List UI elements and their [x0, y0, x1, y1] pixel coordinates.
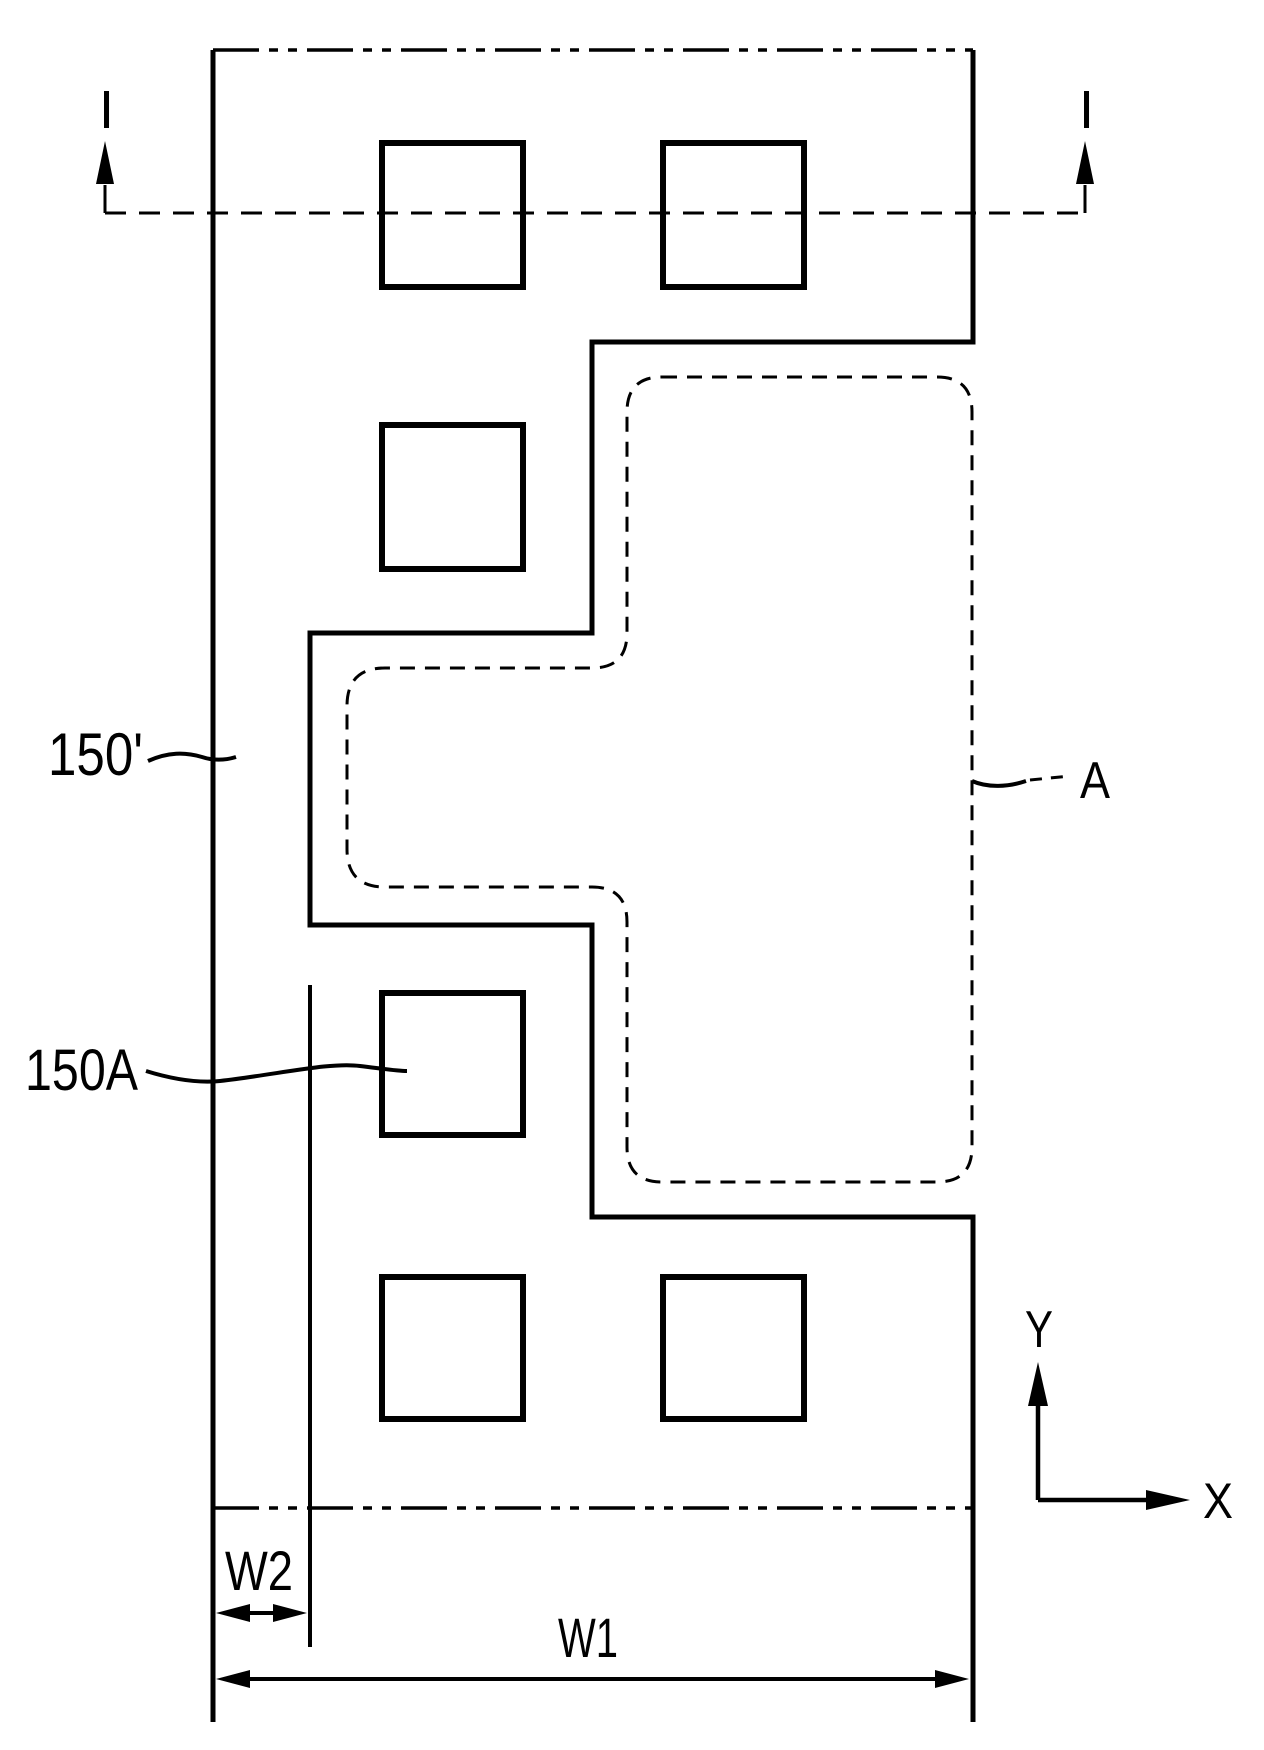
label-150-prime: 150'	[48, 721, 143, 788]
dimension-w1: W1	[216, 1606, 969, 1688]
leader-150-prime	[148, 754, 236, 761]
arrow-up-icon	[1028, 1362, 1048, 1406]
section-arrow-up-icon	[96, 141, 114, 184]
leader-150A	[146, 1065, 407, 1081]
leader-A-solid	[972, 781, 1026, 786]
section-marker-right-label: I	[1079, 80, 1094, 140]
arrow-right-icon	[1146, 1490, 1190, 1510]
contact-square	[663, 143, 804, 287]
section-arrow-up-icon	[1076, 141, 1094, 184]
label-150A: 150A	[25, 1038, 138, 1103]
label-y-axis: Y	[1025, 1301, 1053, 1359]
section-line: I I	[96, 80, 1094, 213]
label-A: A	[1080, 752, 1110, 810]
label-W1: W1	[558, 1606, 618, 1669]
dimension-w2: W2	[216, 1539, 307, 1622]
leader-lines	[146, 754, 1070, 1082]
arrow-left-icon	[216, 1670, 250, 1688]
pattern-stepped-right-edge	[310, 50, 973, 1722]
leader-A-dashed	[1030, 776, 1070, 780]
patent-figure-canvas: I I 150' 150A A W2 W1 Y X	[0, 0, 1264, 1750]
contact-square-150A	[382, 993, 523, 1135]
arrow-right-icon	[935, 1670, 969, 1688]
contact-square	[663, 1277, 804, 1419]
layout-diagram: I I 150' 150A A W2 W1 Y X	[0, 0, 1264, 1750]
phantom-lines	[213, 50, 973, 1508]
contact-square	[382, 425, 523, 569]
contact-squares	[382, 143, 804, 1419]
contact-square	[382, 1277, 523, 1419]
dashed-region-A-outline	[347, 377, 972, 1182]
coordinate-axes: Y X	[1025, 1301, 1233, 1529]
section-marker-left-label: I	[99, 80, 114, 140]
arrow-right-icon	[273, 1604, 307, 1622]
arrow-left-icon	[216, 1604, 250, 1622]
label-W2: W2	[225, 1539, 293, 1602]
contact-square	[382, 143, 523, 287]
label-x-axis: X	[1203, 1473, 1233, 1529]
